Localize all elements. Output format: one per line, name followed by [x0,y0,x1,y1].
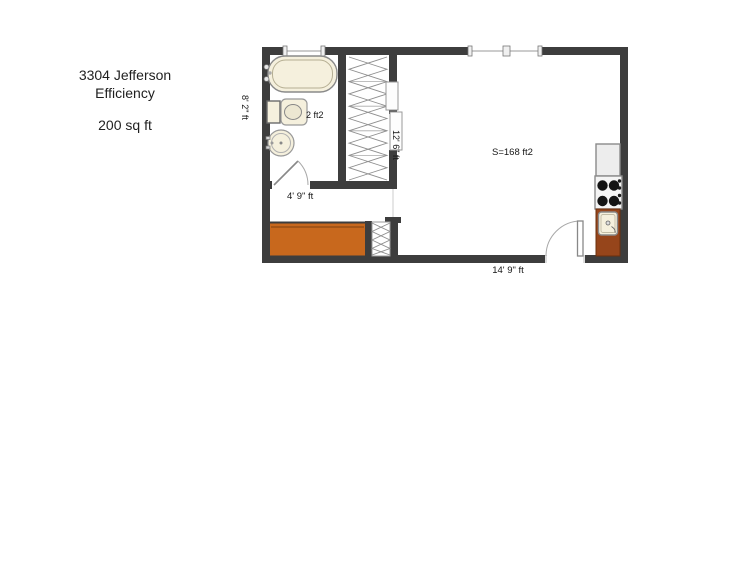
bathroom-sink-icon [266,130,294,156]
label-bathroom-width: 4' 9" ft [287,191,313,202]
refrigerator-icon [596,144,620,176]
label-closet-height: 12' 6" ft [391,130,401,160]
wall-right [620,47,628,263]
wall-closet-right-top [389,55,397,83]
floorplan-drawing [0,0,750,579]
radiator-icon [372,222,390,256]
entry-counter [269,223,366,257]
label-toilet-area: 2 ft2 [306,110,324,120]
toilet-icon [267,99,307,125]
label-main-room-area: S=168 ft2 [492,147,533,158]
label-overall-width: 14' 9" ft [477,265,539,276]
floorplan-page: 3304 Jefferson Efficiency 200 sq ft [0,0,750,579]
stove-icon [595,176,622,209]
label-left-height: 8' 2" ft [240,95,250,120]
wall-bathroom-divider [338,55,346,189]
closet-shelving [349,57,387,180]
kitchen-sink-icon [599,212,618,235]
bathtub-icon [264,56,337,92]
